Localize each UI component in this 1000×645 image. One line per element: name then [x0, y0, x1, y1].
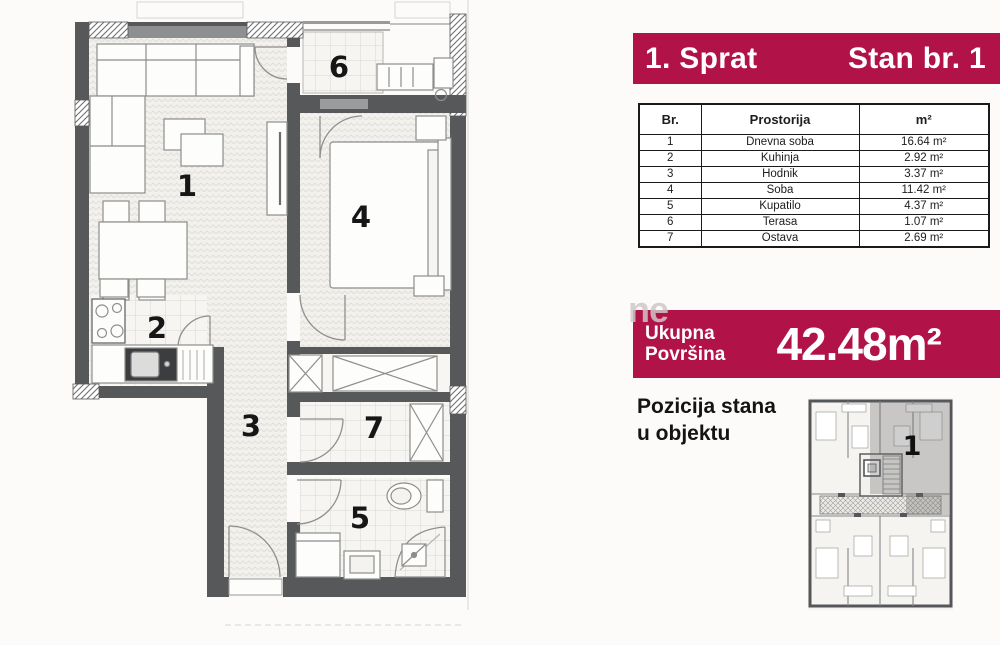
table-row: 4Soba11.42 m² — [639, 183, 989, 199]
mini-plan-unit-number: 1 — [903, 431, 922, 462]
table-row: 2Kuhinja2.92 m² — [639, 151, 989, 167]
room-name: Terasa — [701, 215, 859, 231]
room-area: 2.69 m² — [859, 231, 989, 248]
unit-label: Stan br. 1 — [848, 42, 986, 76]
floor-plan-drawing: 1 2 3 4 5 6 7 — [0, 0, 500, 645]
title-banner: 1. Sprat Stan br. 1 — [633, 33, 1000, 84]
room-label-living: 1 — [177, 169, 197, 203]
col-header-prostorija: Prostorija — [701, 104, 859, 135]
room-label-bathroom: 5 — [350, 501, 370, 535]
total-area-label: Ukupna Površina — [645, 323, 725, 366]
room-area: 1.07 m² — [859, 215, 989, 231]
room-area: 16.64 m² — [859, 135, 989, 151]
col-header-br: Br. — [639, 104, 701, 135]
row-number: 1 — [639, 135, 701, 151]
row-number: 6 — [639, 215, 701, 231]
room-area: 3.37 m² — [859, 167, 989, 183]
area-table: Br. Prostorija m² 1Dnevna soba16.64 m²2K… — [638, 103, 990, 248]
position-caption: Pozicija stana u objektu — [637, 393, 776, 448]
room-label-terrace: 6 — [329, 50, 349, 84]
room-area: 11.42 m² — [859, 183, 989, 199]
total-area-value: 42.48m² — [725, 317, 992, 371]
room-area: 4.37 m² — [859, 199, 989, 215]
row-number: 7 — [639, 231, 701, 248]
room-name: Dnevna soba — [701, 135, 859, 151]
room-area: 2.92 m² — [859, 151, 989, 167]
building-position-plan: 1 — [808, 398, 953, 610]
table-row: 6Terasa1.07 m² — [639, 215, 989, 231]
table-row: 7Ostava2.69 m² — [639, 231, 989, 248]
col-header-m2: m² — [859, 104, 989, 135]
room-name: Hodnik — [701, 167, 859, 183]
total-area-banner: Ukupna Površina 42.48m² — [633, 310, 1000, 378]
table-header-row: Br. Prostorija m² — [639, 104, 989, 135]
listing-floorplan-image: 1 2 3 4 5 6 7 1. Sprat Stan br. 1 Br. Pr… — [0, 0, 1000, 645]
floor-label: 1. Sprat — [645, 42, 757, 76]
table-row: 1Dnevna soba16.64 m² — [639, 135, 989, 151]
row-number: 3 — [639, 167, 701, 183]
room-name: Kuhinja — [701, 151, 859, 167]
room-label-bedroom: 4 — [351, 200, 371, 234]
row-number: 5 — [639, 199, 701, 215]
room-name: Ostava — [701, 231, 859, 248]
room-label-storage: 7 — [364, 411, 384, 445]
room-name: Soba — [701, 183, 859, 199]
table-row: 3Hodnik3.37 m² — [639, 167, 989, 183]
room-label-kitchen: 2 — [147, 311, 167, 345]
area-table-body: 1Dnevna soba16.64 m²2Kuhinja2.92 m²3Hodn… — [639, 135, 989, 248]
row-number: 4 — [639, 183, 701, 199]
room-name: Kupatilo — [701, 199, 859, 215]
table-row: 5Kupatilo4.37 m² — [639, 199, 989, 215]
row-number: 2 — [639, 151, 701, 167]
room-label-hallway: 3 — [241, 409, 261, 443]
